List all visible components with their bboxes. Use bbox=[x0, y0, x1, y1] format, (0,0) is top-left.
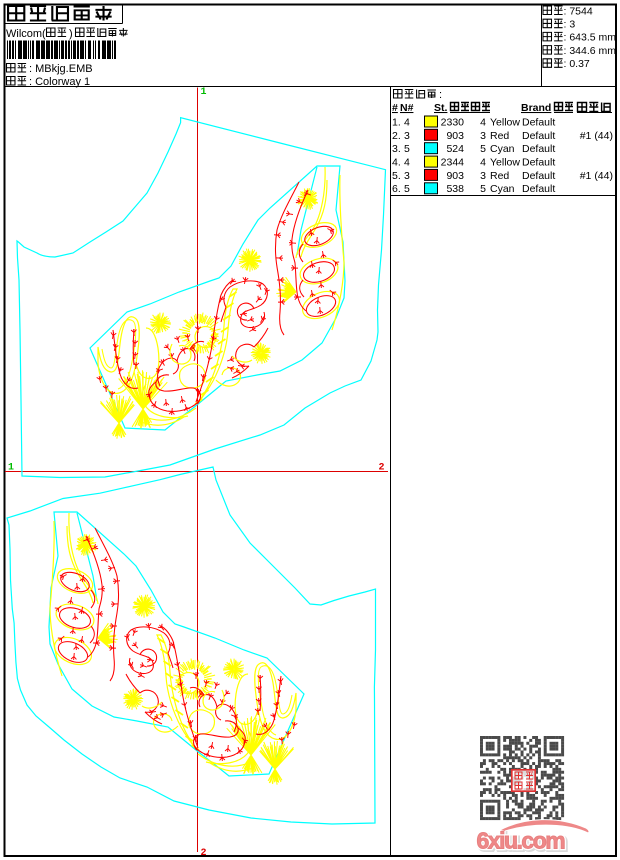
svg-text:Default: Default bbox=[522, 183, 555, 195]
svg-text:4.: 4. bbox=[392, 157, 401, 169]
svg-text:Default: Default bbox=[522, 117, 555, 129]
svg-text:3: 3 bbox=[480, 170, 486, 182]
svg-text:St.: St. bbox=[434, 102, 448, 114]
svg-text:3: 3 bbox=[480, 130, 486, 142]
svg-text:: MBkjg.EMB: : MBkjg.EMB bbox=[29, 63, 93, 75]
svg-text:524: 524 bbox=[446, 143, 464, 155]
svg-text:5.: 5. bbox=[392, 170, 401, 182]
svg-text:4: 4 bbox=[404, 157, 410, 169]
svg-text:2.: 2. bbox=[392, 130, 401, 142]
svg-text:: Colorway 1: : Colorway 1 bbox=[29, 76, 90, 88]
svg-text:2: 2 bbox=[379, 463, 385, 474]
svg-text:4: 4 bbox=[480, 157, 486, 169]
svg-text:2330: 2330 bbox=[441, 117, 465, 129]
svg-text:N#: N# bbox=[400, 102, 414, 114]
svg-text:2: 2 bbox=[201, 848, 207, 859]
svg-text:: 344.6 mm: : 344.6 mm bbox=[564, 45, 617, 57]
svg-text:5: 5 bbox=[404, 183, 410, 195]
svg-text:538: 538 bbox=[446, 183, 464, 195]
svg-text:Yellow: Yellow bbox=[490, 157, 520, 169]
svg-text:Default: Default bbox=[522, 170, 555, 182]
svg-text:3: 3 bbox=[404, 170, 410, 182]
svg-text:Default: Default bbox=[522, 130, 555, 142]
svg-text:5: 5 bbox=[404, 143, 410, 155]
svg-text:Cyan: Cyan bbox=[490, 183, 515, 195]
svg-text:6xiu.com: 6xiu.com bbox=[477, 828, 566, 854]
svg-text:Yellow: Yellow bbox=[490, 117, 520, 129]
svg-text:903: 903 bbox=[446, 170, 464, 182]
svg-text:#: # bbox=[392, 102, 398, 114]
svg-text:Red: Red bbox=[490, 170, 509, 182]
svg-text:Red: Red bbox=[490, 130, 509, 142]
svg-text:6.: 6. bbox=[392, 183, 401, 195]
svg-text:4: 4 bbox=[404, 117, 410, 129]
svg-text:3: 3 bbox=[404, 130, 410, 142]
svg-text:Cyan: Cyan bbox=[490, 143, 515, 155]
svg-text:3.: 3. bbox=[392, 143, 401, 155]
svg-text::: : bbox=[439, 89, 442, 101]
svg-text:: 643.5 mm: : 643.5 mm bbox=[564, 32, 617, 44]
svg-text:): ) bbox=[69, 28, 73, 40]
svg-text:Default: Default bbox=[522, 143, 555, 155]
svg-text:1.: 1. bbox=[392, 117, 401, 129]
svg-text:Brand: Brand bbox=[521, 102, 551, 114]
svg-text:#1 (44): #1 (44) bbox=[580, 130, 613, 142]
svg-text:5: 5 bbox=[480, 183, 486, 195]
svg-text:5: 5 bbox=[480, 143, 486, 155]
svg-text:: 0.37: : 0.37 bbox=[564, 58, 590, 70]
svg-text:1: 1 bbox=[201, 87, 207, 98]
svg-text:2344: 2344 bbox=[441, 157, 465, 169]
svg-text:Default: Default bbox=[522, 157, 555, 169]
svg-text:903: 903 bbox=[446, 130, 464, 142]
svg-text:4: 4 bbox=[480, 117, 486, 129]
svg-text:Wilcom(: Wilcom( bbox=[6, 28, 46, 40]
svg-text:#1 (44): #1 (44) bbox=[580, 170, 613, 182]
svg-text:: 7544: : 7544 bbox=[564, 5, 593, 17]
svg-text:1: 1 bbox=[8, 463, 14, 474]
svg-text:: 3: : 3 bbox=[564, 19, 576, 31]
